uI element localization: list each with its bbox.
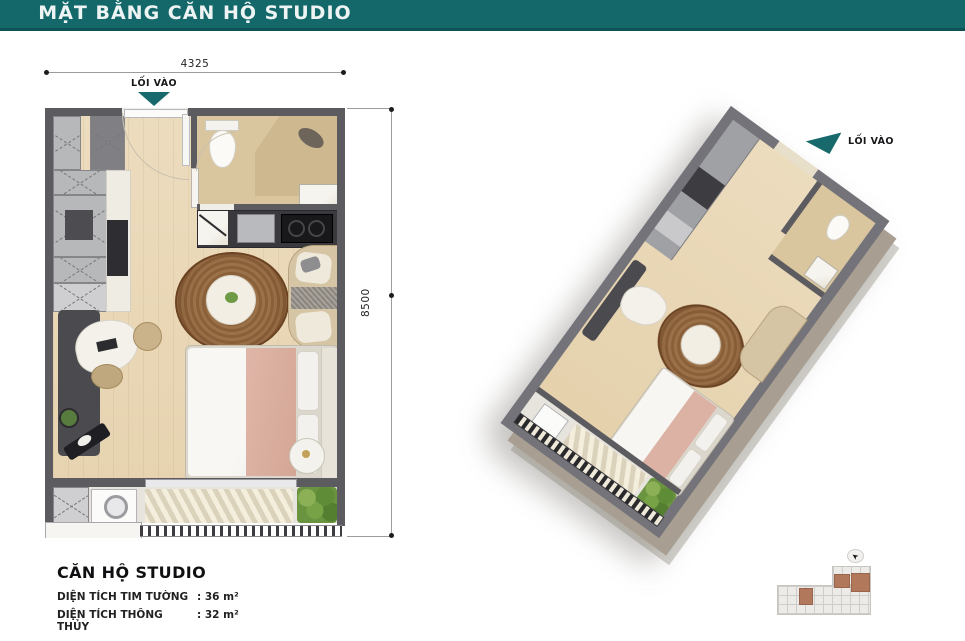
area-value: : 36 m² bbox=[197, 591, 239, 603]
cabinet bbox=[53, 116, 81, 170]
entrance-label-2d: LỐI VÀO bbox=[119, 78, 189, 89]
area-value: : 32 m² bbox=[197, 609, 239, 633]
sofa-nook-3d bbox=[733, 299, 808, 383]
dimension-tick bbox=[389, 533, 394, 538]
cabinet bbox=[53, 283, 107, 312]
wall-top bbox=[45, 108, 122, 116]
dimension-tick bbox=[44, 70, 49, 75]
dimension-tick bbox=[389, 107, 394, 112]
plant-pot bbox=[59, 408, 79, 428]
info-row: DIỆN TÍCH TIM TƯỜNG : 36 m² bbox=[57, 591, 239, 603]
extension-line bbox=[347, 108, 393, 109]
unit-info: CĂN HỘ STUDIO DIỆN TÍCH TIM TƯỜNG : 36 m… bbox=[57, 563, 239, 633]
entry-wardrobe bbox=[90, 114, 125, 170]
burner bbox=[288, 220, 305, 237]
key-plan: ➤ bbox=[775, 547, 880, 619]
floor-plan-2d bbox=[45, 108, 345, 538]
cabinet bbox=[53, 257, 107, 283]
dimension-tick bbox=[341, 70, 346, 75]
dimension-width-line bbox=[46, 72, 344, 73]
info-row: DIỆN TÍCH THÔNG THỦY : 32 m² bbox=[57, 609, 239, 633]
entrance-arrow-icon bbox=[138, 92, 170, 106]
dimension-height-line bbox=[391, 110, 392, 537]
stool bbox=[91, 364, 123, 389]
side-table-item bbox=[302, 450, 310, 458]
table-plant bbox=[225, 292, 238, 303]
pillow bbox=[297, 351, 319, 411]
wall-right bbox=[337, 108, 345, 526]
appliance bbox=[65, 210, 93, 240]
tall-unit bbox=[107, 220, 128, 276]
header-banner: MẶT BẰNG CĂN HỘ STUDIO bbox=[0, 0, 965, 31]
chair bbox=[133, 322, 162, 351]
dimension-height-label: 8500 bbox=[360, 288, 372, 317]
sofa-cushion bbox=[295, 310, 333, 343]
balcony-plants bbox=[297, 487, 337, 523]
compass-icon: ➤ bbox=[847, 549, 864, 563]
balcony-cabinet bbox=[53, 487, 89, 525]
unit-title: CĂN HỘ STUDIO bbox=[57, 563, 239, 582]
balcony-deck bbox=[145, 489, 293, 523]
cabinet bbox=[53, 170, 107, 195]
entrance-label-3d: LỐI VÀO bbox=[848, 136, 894, 147]
area-label: DIỆN TÍCH THÔNG THỦY bbox=[57, 609, 197, 633]
balcony-railing bbox=[140, 525, 342, 537]
wall-top bbox=[188, 108, 345, 116]
entry-opening-3d bbox=[774, 141, 819, 177]
balcony-sill bbox=[45, 522, 142, 538]
entrance-arrow-icon-3d bbox=[805, 128, 842, 156]
extension-line bbox=[347, 536, 393, 537]
burner bbox=[308, 220, 325, 237]
wall-left bbox=[45, 108, 53, 526]
area-label: DIỆN TÍCH TIM TƯỜNG bbox=[57, 591, 197, 603]
floor-plan-3d bbox=[501, 106, 890, 538]
sofa-rug bbox=[291, 287, 337, 309]
highlighted-unit bbox=[799, 588, 813, 605]
kitchen-sink bbox=[237, 214, 275, 243]
dimension-width-label: 4325 bbox=[46, 58, 344, 70]
highlighted-unit bbox=[834, 574, 850, 588]
dimension-tick bbox=[389, 293, 394, 298]
page-title: MẶT BẰNG CĂN HỘ STUDIO bbox=[0, 2, 390, 24]
highlighted-unit bbox=[851, 573, 870, 592]
washer-drum bbox=[104, 495, 128, 519]
